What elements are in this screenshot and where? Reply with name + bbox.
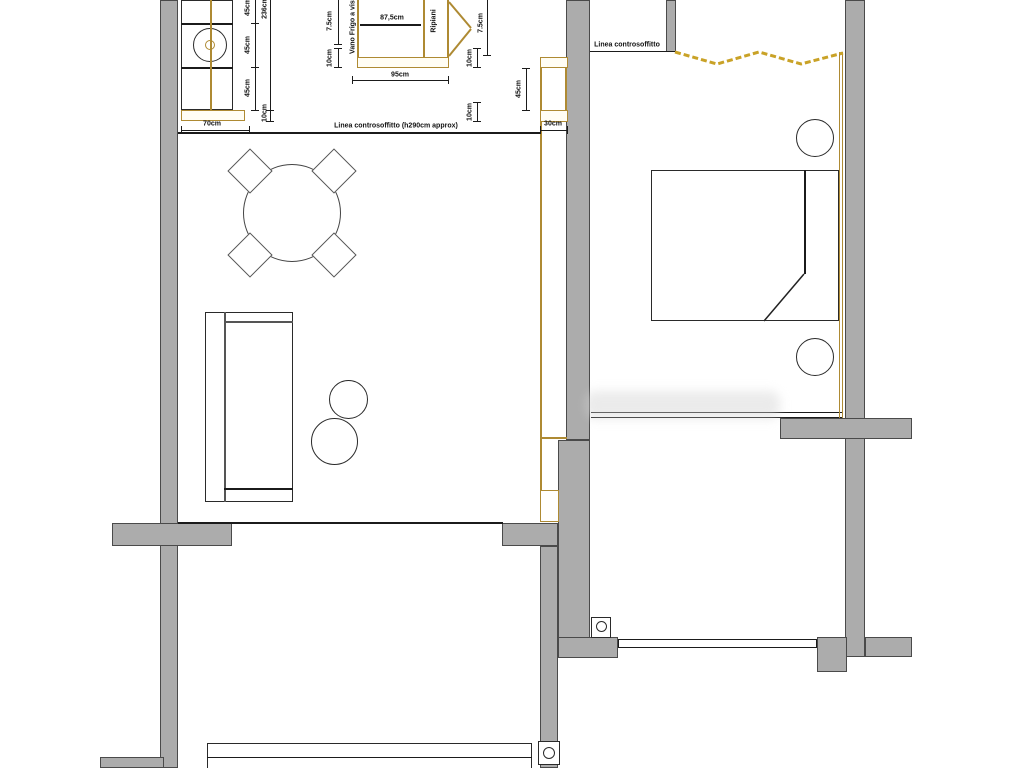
cabinet-door-swing-lower [449, 29, 471, 56]
floorplan-canvas: Linea controsoffitto (h290cm approx) Lin… [0, 0, 1024, 768]
bed-sheet-diagonal [764, 274, 804, 321]
overlay-drawing [0, 0, 1024, 768]
curtain-zigzag [675, 52, 843, 64]
cabinet-door-swing-upper [449, 2, 471, 28]
